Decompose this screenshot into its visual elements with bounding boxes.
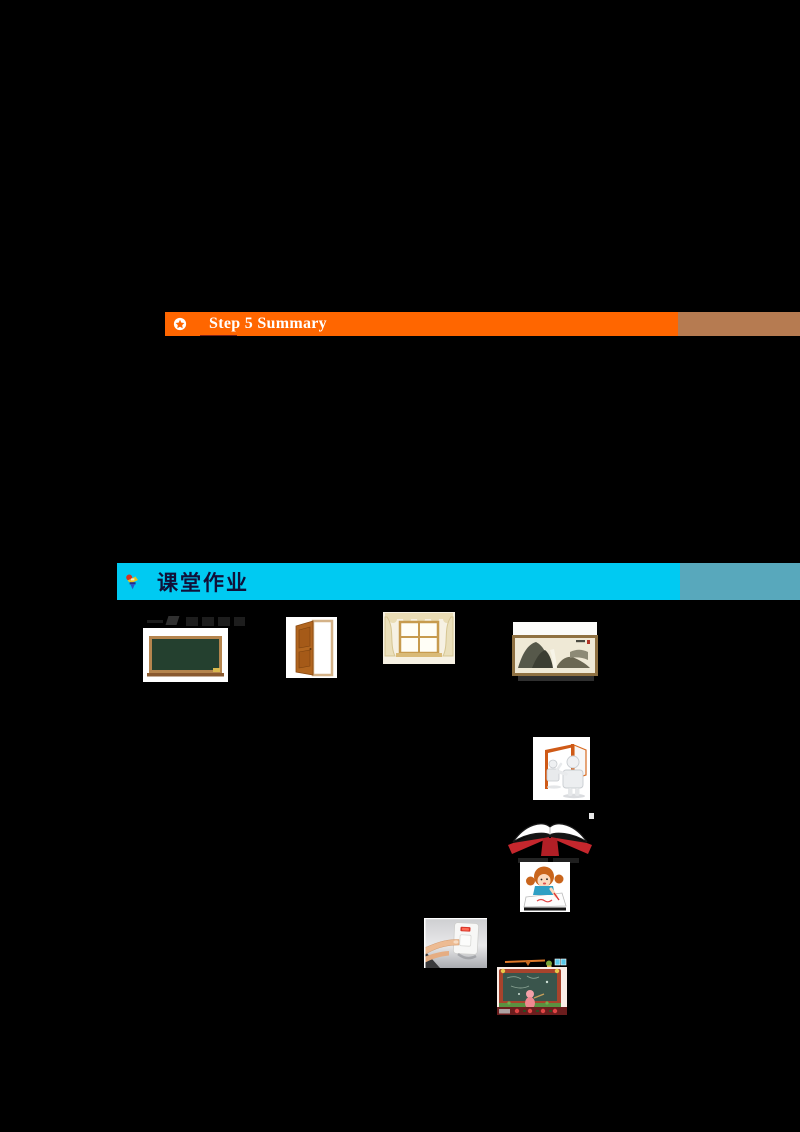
- figures-at-open-door-clipart: [533, 737, 590, 800]
- homework-banner-end-block: [680, 563, 800, 600]
- curtained-window-photo: [383, 612, 455, 664]
- homework-banner-label: 课堂作业: [157, 567, 249, 597]
- summary-section-banner: Step 5 Summary: [165, 312, 678, 336]
- summary-banner-label: Step 5 Summary: [209, 315, 327, 333]
- star-circle-icon: [173, 317, 187, 331]
- faded-text-artifact: [186, 617, 198, 626]
- open-door-photo: [286, 617, 337, 678]
- faded-text-artifact: [218, 617, 230, 626]
- homework-section-banner: 课堂作业: [117, 563, 680, 600]
- faded-text-artifact: [166, 616, 180, 625]
- faded-text-artifact: [202, 617, 214, 626]
- framed-landscape-painting-photo: [512, 622, 598, 681]
- faded-text-artifact: [234, 617, 245, 626]
- blackboard-photo: [143, 628, 228, 682]
- faded-text-artifact: [147, 620, 163, 623]
- summary-banner-end-block: [678, 312, 800, 336]
- pushpin-icon: [125, 573, 140, 590]
- page-background: Step 5 Summary 课堂作业: [0, 0, 800, 1132]
- finger-pressing-light-switch-photo: [424, 918, 487, 968]
- open-red-book-clipart: [505, 813, 595, 859]
- girl-writing-clipart: [520, 862, 570, 912]
- spellcheck-underline: [200, 335, 237, 336]
- cartoon-classroom-blackboard: [497, 956, 567, 1015]
